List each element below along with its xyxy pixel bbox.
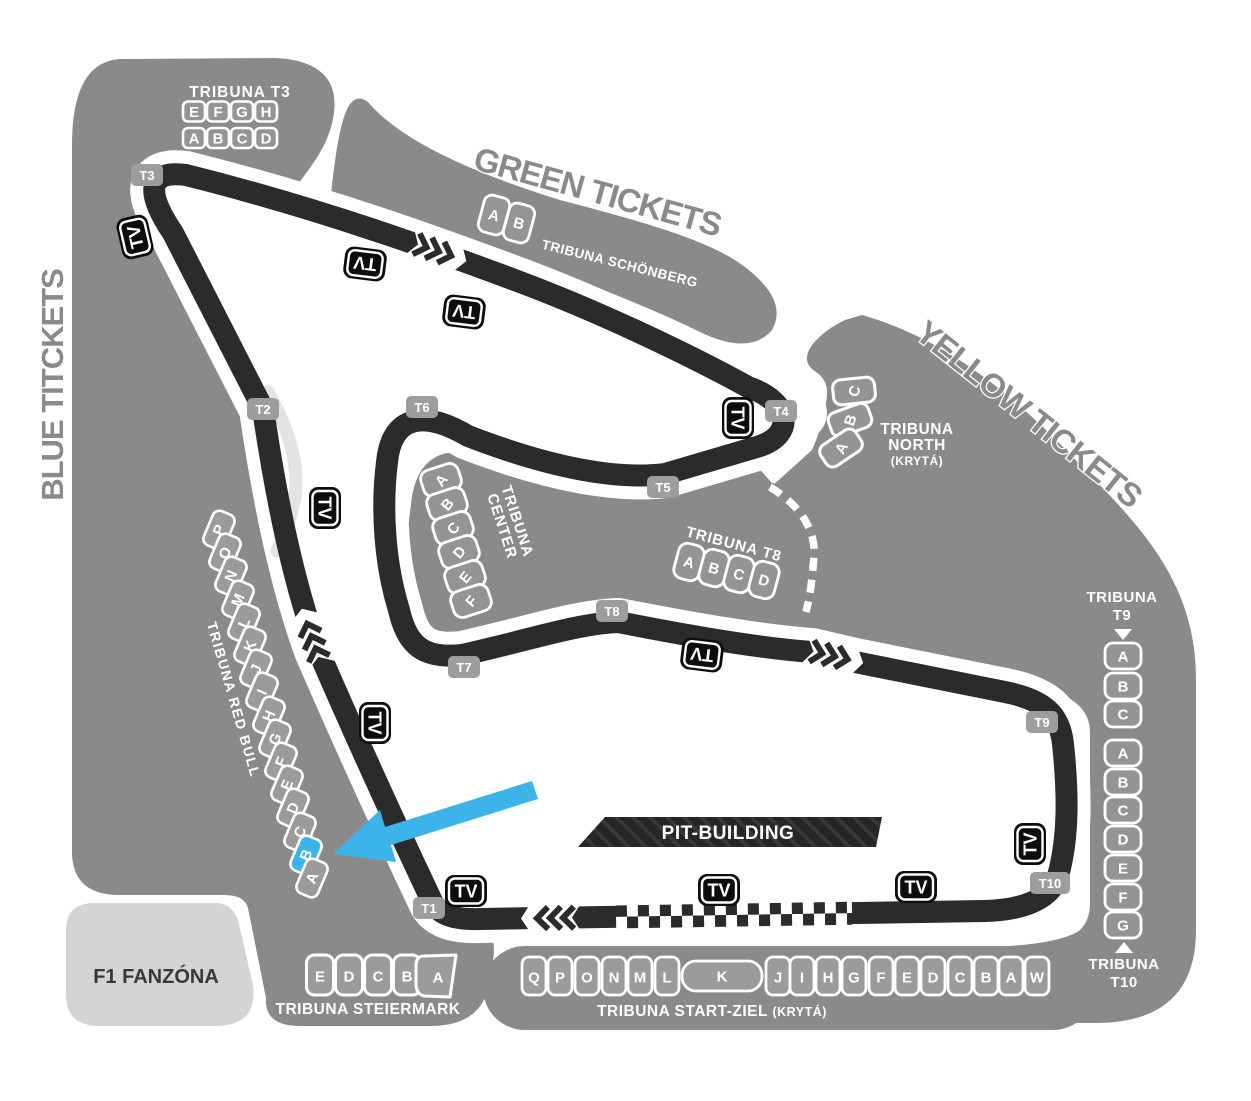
svg-text:T5: T5 [655, 480, 670, 495]
svg-text:E: E [902, 970, 912, 987]
svg-text:A: A [1118, 746, 1129, 763]
svg-text:B: B [1118, 775, 1129, 792]
svg-text:D: D [261, 131, 272, 148]
svg-text:TRIBUNA STEIERMARK: TRIBUNA STEIERMARK [276, 1001, 461, 1018]
svg-text:F: F [1118, 890, 1127, 907]
svg-text:T9: T9 [1113, 607, 1132, 624]
svg-text:A: A [433, 970, 444, 987]
svg-text:D: D [928, 970, 939, 987]
svg-text:B: B [402, 969, 413, 986]
svg-text:TRIBUNA: TRIBUNA [1089, 956, 1160, 973]
svg-text:L: L [662, 970, 671, 987]
svg-text:TRIBUNA: TRIBUNA [880, 421, 953, 438]
svg-text:G: G [848, 970, 860, 987]
svg-text:T6: T6 [414, 400, 429, 415]
svg-text:C: C [1118, 803, 1129, 820]
svg-text:C: C [955, 970, 966, 987]
svg-text:D: D [1118, 832, 1129, 849]
svg-text:E: E [315, 969, 325, 986]
svg-text:T10: T10 [1110, 974, 1137, 991]
svg-text:T3: T3 [139, 168, 154, 183]
svg-text:A: A [1118, 649, 1129, 666]
svg-text:N: N [609, 970, 620, 987]
svg-text:T1: T1 [421, 901, 436, 916]
svg-text:A: A [189, 131, 200, 148]
svg-text:PIT-BUILDING: PIT-BUILDING [662, 823, 795, 844]
svg-text:T2: T2 [255, 402, 270, 417]
svg-text:H: H [823, 970, 834, 987]
svg-text:NORTH: NORTH [888, 437, 946, 454]
svg-text:G: G [1117, 918, 1129, 935]
svg-text:B: B [1118, 679, 1129, 696]
svg-text:(KRYTÁ): (KRYTÁ) [891, 453, 943, 468]
svg-text:D: D [344, 969, 355, 986]
svg-text:T4: T4 [773, 404, 789, 419]
svg-text:C: C [237, 131, 248, 148]
svg-text:TRIBUNA: TRIBUNA [1087, 589, 1158, 606]
svg-text:F: F [876, 970, 885, 987]
svg-text:H: H [261, 104, 272, 121]
svg-text:E: E [189, 104, 199, 121]
svg-text:T10: T10 [1039, 876, 1061, 891]
svg-text:F: F [213, 104, 222, 121]
svg-text:TRIBUNA T3: TRIBUNA T3 [189, 84, 291, 101]
svg-text:C: C [373, 969, 384, 986]
svg-text:O: O [581, 970, 593, 987]
svg-text:Q: Q [528, 970, 540, 987]
svg-text:P: P [555, 970, 565, 987]
svg-text:E: E [1118, 861, 1128, 878]
svg-text:T9: T9 [1034, 715, 1049, 730]
svg-text:TRIBUNA START-ZIEL (KRYTÁ): TRIBUNA START-ZIEL (KRYTÁ) [597, 1003, 827, 1020]
svg-text:B: B [213, 131, 224, 148]
svg-text:J: J [774, 970, 782, 987]
svg-text:G: G [236, 104, 248, 121]
svg-text:T7: T7 [456, 660, 471, 675]
svg-text:F1 FANZÓNA: F1 FANZÓNA [93, 964, 219, 988]
svg-text:K: K [717, 969, 728, 986]
svg-text:T8: T8 [604, 604, 619, 619]
svg-text:A: A [1006, 970, 1017, 987]
svg-text:M: M [634, 970, 647, 987]
svg-text:C: C [1118, 707, 1129, 724]
svg-text:I: I [800, 970, 804, 987]
svg-text:W: W [1030, 970, 1045, 987]
svg-text:B: B [981, 970, 992, 987]
svg-text:BLUE TITCKETS: BLUE TITCKETS [35, 269, 70, 501]
